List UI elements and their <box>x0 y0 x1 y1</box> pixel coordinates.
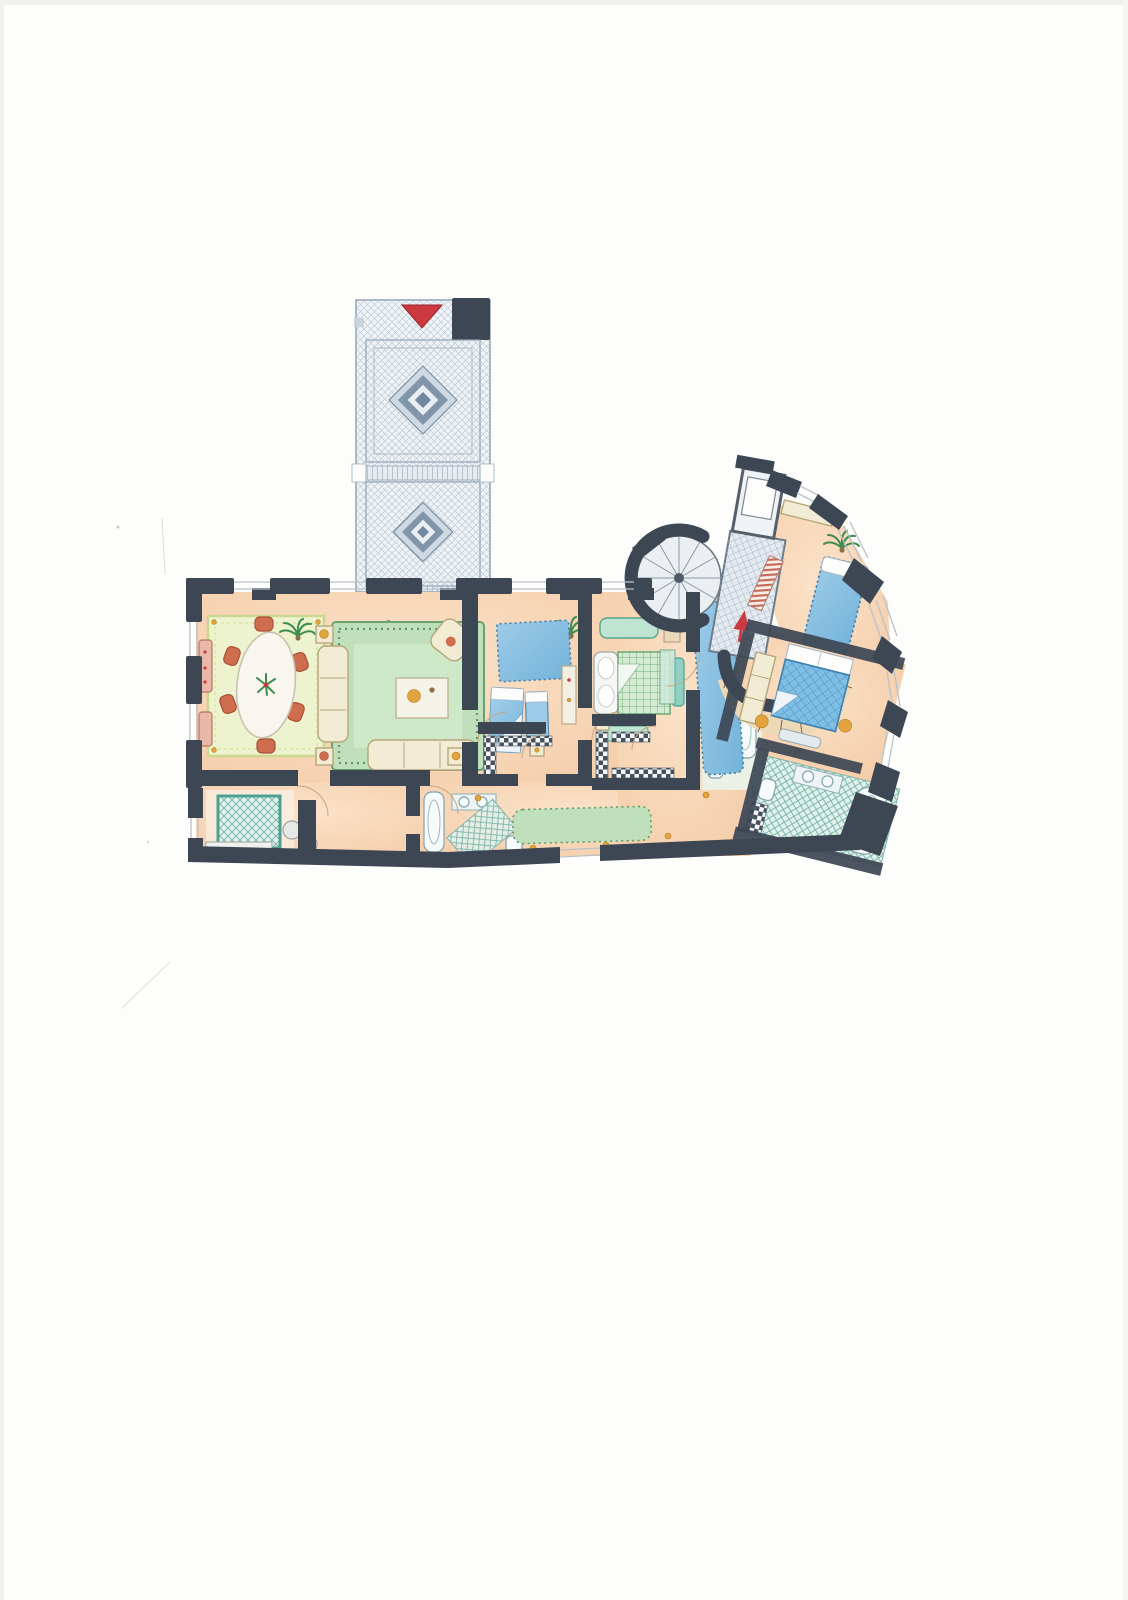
scanned-page <box>0 0 1128 1600</box>
chaise <box>660 650 675 704</box>
floor-plan <box>0 0 1128 1600</box>
gallery-wall-block <box>452 298 490 340</box>
entry-gallery <box>352 298 494 593</box>
gallery-panel-lower <box>366 482 480 586</box>
coffee-table <box>396 678 448 718</box>
gallery-panel-upper <box>366 340 480 462</box>
kitchen-table <box>218 796 280 848</box>
dining-room <box>199 616 324 756</box>
double-bed <box>594 652 670 714</box>
green-runner-rug <box>513 806 652 844</box>
wardrobe <box>562 666 576 724</box>
bathtub <box>424 792 444 852</box>
sofa-left <box>318 646 348 742</box>
blue-rug <box>497 620 572 682</box>
single-bed-2 <box>525 692 549 743</box>
